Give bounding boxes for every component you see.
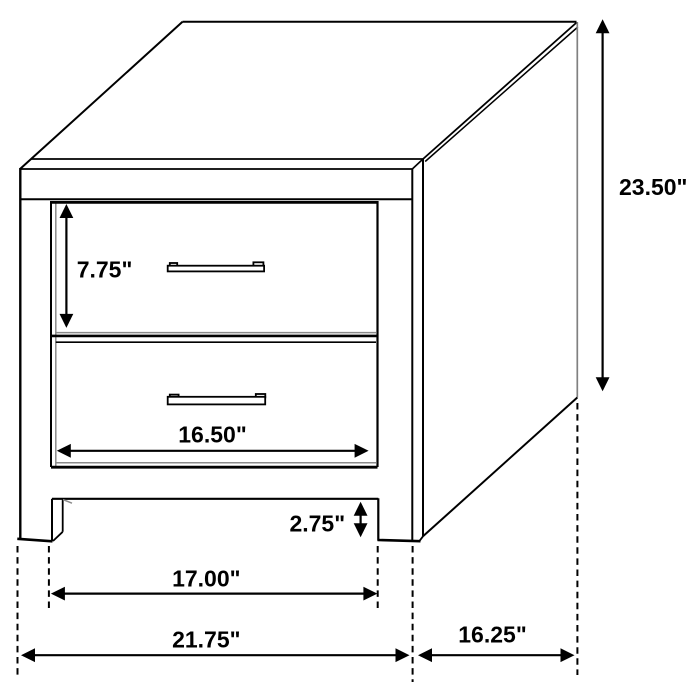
- svg-text:16.50": 16.50": [178, 422, 246, 448]
- svg-text:21.75": 21.75": [172, 627, 240, 653]
- svg-text:2.75": 2.75": [289, 511, 345, 537]
- svg-text:7.75": 7.75": [77, 256, 133, 282]
- svg-text:17.00": 17.00": [172, 566, 240, 592]
- svg-text:23.50": 23.50": [619, 174, 687, 200]
- svg-text:16.25": 16.25": [458, 622, 526, 648]
